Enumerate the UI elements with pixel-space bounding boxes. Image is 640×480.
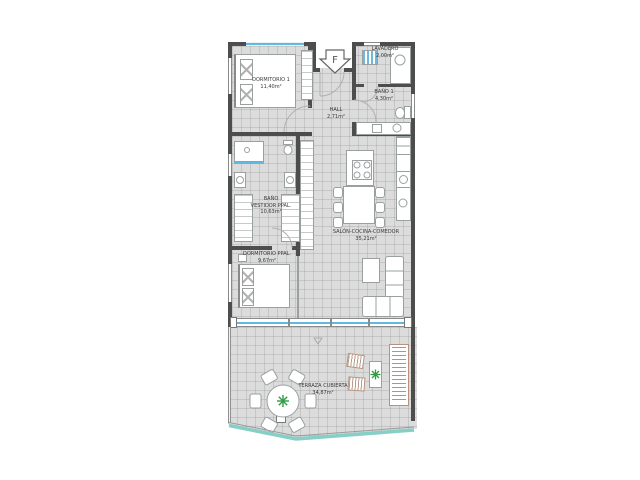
shower-tray	[234, 141, 264, 162]
window	[228, 264, 232, 302]
sofa	[385, 256, 404, 299]
chair	[375, 187, 385, 198]
tall-cabinet	[300, 140, 314, 250]
glass-mullion	[368, 319, 370, 326]
chair	[375, 202, 385, 213]
cooktop	[352, 160, 372, 180]
floor-plan: F	[0, 0, 640, 480]
wall	[378, 84, 411, 87]
toilet-tank	[404, 106, 411, 119]
bathroom-counter	[356, 122, 411, 135]
wall	[352, 46, 356, 100]
sun-lounger	[346, 353, 365, 369]
room-area: 9,67m²	[240, 258, 294, 265]
room-label-bano-1: BAÑO 1 4,30m²	[360, 89, 408, 102]
room-area: 4,30m²	[360, 96, 408, 103]
glass-end-post	[230, 317, 237, 328]
pillow	[242, 268, 254, 286]
room-label-dormitorio-ppal: DORMITORIO PPAL. 9,67m²	[240, 251, 294, 264]
window	[228, 58, 232, 94]
chair	[333, 217, 343, 228]
sofa-chaise	[362, 296, 404, 317]
room-area: 11,40m²	[243, 84, 299, 91]
wall	[228, 246, 272, 250]
pillow	[242, 288, 254, 306]
wall	[356, 84, 364, 87]
plant-table	[369, 361, 382, 388]
wardrobe	[301, 50, 313, 100]
terrace-glass-door	[232, 318, 411, 327]
oven	[396, 171, 411, 188]
room-label-bano-vestidor: BAÑO VESTIDOR PPAL. 10,63m²	[246, 196, 296, 216]
fridge	[396, 137, 411, 155]
glass-mullion	[330, 319, 332, 326]
wall	[411, 42, 415, 327]
room-name: TERRAZA CUBIERTA	[292, 383, 354, 390]
window	[411, 94, 415, 118]
terrace-wall	[228, 327, 231, 423]
chair	[333, 202, 343, 213]
glass-mullion	[288, 319, 290, 326]
bathroom-sink	[372, 124, 382, 133]
shower-glass	[234, 162, 264, 164]
bathroom-sink	[234, 172, 246, 188]
room-label-terraza: TERRAZA CUBIERTA 34,87m²	[292, 383, 354, 396]
room-name: SALÓN-COCINA-COMEDOR	[330, 229, 402, 236]
coffee-table	[362, 258, 380, 283]
room-label-lavadero: LAVADERO 2,00m²	[361, 46, 409, 59]
column	[276, 414, 286, 423]
chair	[375, 217, 385, 228]
window	[228, 154, 232, 176]
room-label-dormitorio-1: DORMITORIO 1 11,40m²	[243, 77, 299, 90]
room-label-hall: HALL 2,71m²	[318, 107, 354, 120]
louver-slats	[392, 347, 406, 403]
sliding-partition	[297, 256, 299, 318]
room-area: 2,71m²	[318, 114, 354, 121]
entrance-recess	[316, 46, 352, 68]
bathroom-sink	[284, 172, 296, 188]
room-area: 2,00m²	[361, 53, 409, 60]
room-area: 34,87m²	[292, 390, 354, 397]
wall	[312, 68, 320, 72]
room-area: 35,21m²	[330, 236, 402, 243]
wall	[344, 68, 356, 72]
louver-panel	[389, 344, 409, 406]
chair	[333, 187, 343, 198]
room-name: DORMITORIO PPAL.	[240, 251, 294, 258]
room-name: BAÑO VESTIDOR PPAL.	[246, 196, 296, 209]
room-label-salon: SALÓN-COCINA-COMEDOR 35,21m²	[330, 229, 402, 242]
dining-table	[343, 186, 375, 224]
terrace-wall	[411, 327, 415, 421]
toilet-tank	[283, 140, 293, 145]
window-glazing	[246, 42, 304, 46]
room-area: 10,63m²	[246, 209, 296, 216]
